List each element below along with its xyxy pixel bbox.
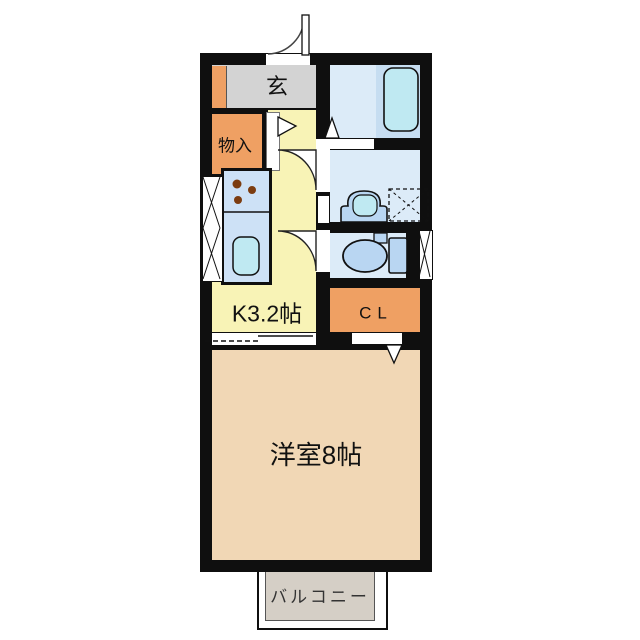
genkan-step-line xyxy=(264,108,316,110)
storage-label: 物入 xyxy=(218,138,252,155)
entrance-door-leaf xyxy=(302,15,309,55)
entrance-door-sill xyxy=(266,54,310,65)
entrance-door-arc xyxy=(268,17,304,54)
toilet-bottom-wall xyxy=(330,278,432,288)
closet-label: CL xyxy=(359,305,393,322)
toilet-door-opening xyxy=(316,230,330,272)
sliding-door-band xyxy=(203,333,316,345)
outer-wall-left xyxy=(200,53,212,572)
washroom-floor xyxy=(330,150,420,222)
outer-wall-right xyxy=(420,53,432,572)
western-room-label: 洋室8帖 xyxy=(270,442,362,468)
genkan-label: 玄 xyxy=(266,76,288,98)
window-right xyxy=(419,230,433,280)
kitchen-counter xyxy=(224,171,269,282)
outer-wall-top xyxy=(200,53,432,65)
toilet-side-pillar xyxy=(406,228,420,278)
balcony-label: バルコニー xyxy=(270,589,370,606)
bathtub-platform xyxy=(376,65,420,138)
closet-door-sill xyxy=(352,333,402,344)
genkan-floor xyxy=(212,65,316,110)
bathroom-door-sill xyxy=(316,139,374,149)
floor-plan: 玄 物入 K3.2帖 CL 洋室8帖 バルコニー xyxy=(0,0,640,640)
outer-wall-bottom xyxy=(200,560,432,572)
kitchen-label: K3.2帖 xyxy=(232,303,302,326)
storage-door-gap xyxy=(266,112,280,171)
divider-notch xyxy=(318,196,329,223)
toilet-floor xyxy=(330,233,406,278)
window-left xyxy=(202,176,223,282)
shoe-cabinet xyxy=(212,66,227,108)
